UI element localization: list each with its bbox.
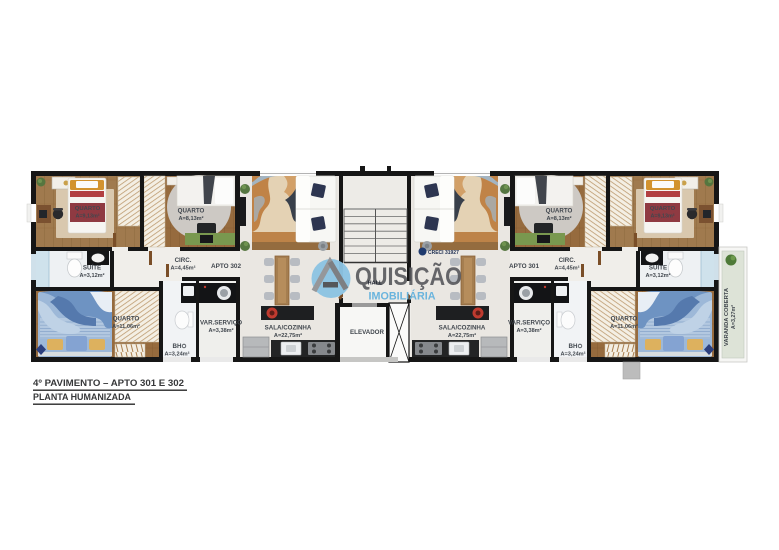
svg-text:A=9,13m²: A=9,13m² [650, 213, 674, 219]
svg-text:PLANTA HUMANIZADA: PLANTA HUMANIZADA [33, 392, 131, 403]
svg-text:QUARTO: QUARTO [611, 316, 638, 323]
svg-text:QUARTO: QUARTO [650, 206, 676, 212]
svg-text:ELEVADOR: ELEVADOR [350, 329, 384, 336]
svg-text:A=22,75m²: A=22,75m² [448, 332, 476, 339]
svg-text:QUARTO: QUARTO [75, 206, 101, 212]
svg-text:A=3,27m²: A=3,27m² [731, 305, 737, 329]
svg-text:SUÍTE: SUÍTE [649, 264, 667, 272]
svg-text:A=9,13m²: A=9,13m² [75, 213, 99, 219]
svg-text:CIRC.: CIRC. [559, 257, 576, 264]
svg-text:SALA/COZINHA: SALA/COZINHA [265, 325, 312, 332]
svg-text:VAR.SERVIÇO: VAR.SERVIÇO [508, 320, 550, 327]
svg-text:4º PAVIMENTO – APTO 301 E 302: 4º PAVIMENTO – APTO 301 E 302 [33, 378, 184, 389]
svg-text:QUARTO: QUARTO [546, 208, 573, 215]
svg-text:QUARTO: QUARTO [178, 208, 205, 215]
svg-text:A=3,24m²: A=3,24m² [560, 350, 585, 357]
svg-text:SALA/COZINHA: SALA/COZINHA [439, 325, 486, 332]
svg-text:A=3,38m²: A=3,38m² [516, 327, 541, 334]
svg-text:A=4,45m²: A=4,45m² [170, 264, 195, 271]
svg-text:SUÍTE: SUÍTE [83, 264, 101, 272]
svg-text:VAR.SERVIÇO: VAR.SERVIÇO [200, 320, 242, 327]
svg-text:A=3,24m²: A=3,24m² [164, 350, 189, 357]
svg-text:A=3,12m²: A=3,12m² [645, 272, 670, 279]
svg-text:A=22,75m²: A=22,75m² [274, 332, 302, 339]
svg-text:BH: BH [173, 343, 182, 350]
svg-text:QUARTO: QUARTO [113, 316, 140, 323]
svg-text:A=4,45m²: A=4,45m² [554, 264, 579, 271]
svg-text:A=3,12m²: A=3,12m² [79, 272, 104, 279]
svg-text:CIRC.: CIRC. [175, 257, 192, 264]
svg-text:QUISIÇÃO: QUISIÇÃO [355, 261, 462, 291]
svg-text:A=3,38m²: A=3,38m² [208, 327, 233, 334]
svg-text:CRECI 31927: CRECI 31927 [428, 250, 459, 256]
svg-text:APTO 302: APTO 302 [211, 263, 242, 270]
svg-text:A=8,13m²: A=8,13m² [178, 215, 203, 222]
svg-text:A=11,06m²: A=11,06m² [610, 323, 638, 330]
svg-text:VARANDA COBERTA: VARANDA COBERTA [724, 287, 730, 346]
svg-text:APTO 301: APTO 301 [509, 263, 540, 270]
svg-text:IMOBILIÁRIA: IMOBILIÁRIA [369, 290, 436, 303]
svg-text:HALL: HALL [368, 281, 383, 287]
svg-text:A=11,06m²: A=11,06m² [112, 323, 140, 330]
svg-text:A=8,13m²: A=8,13m² [546, 215, 571, 222]
svg-text:BH: BH [569, 343, 578, 350]
